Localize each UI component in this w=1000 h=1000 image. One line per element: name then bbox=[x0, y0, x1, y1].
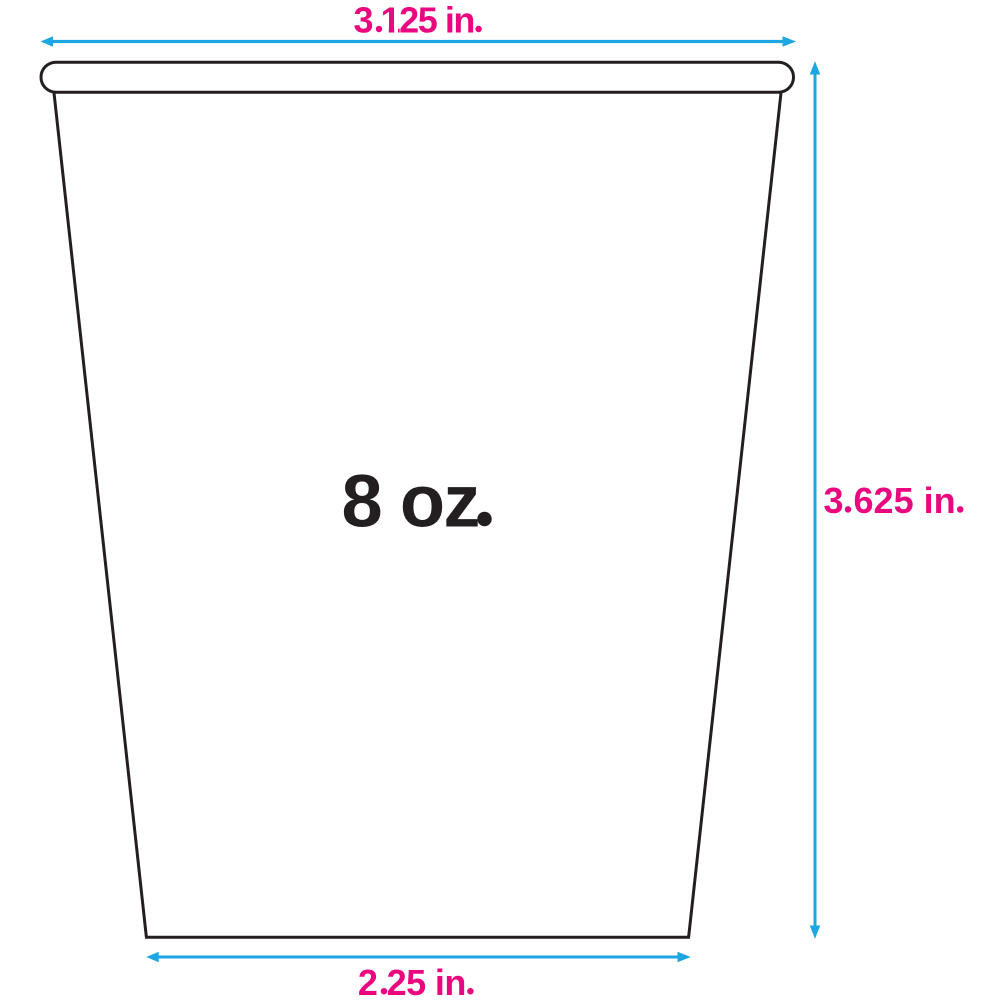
svg-text:3.125 in.: 3.125 in. bbox=[353, 0, 482, 40]
svg-text:8 oz: 8 oz bbox=[342, 460, 479, 543]
svg-text:2.25 in.: 2.25 in. bbox=[358, 962, 475, 1000]
svg-text:3.625 in.: 3.625 in. bbox=[824, 480, 966, 521]
